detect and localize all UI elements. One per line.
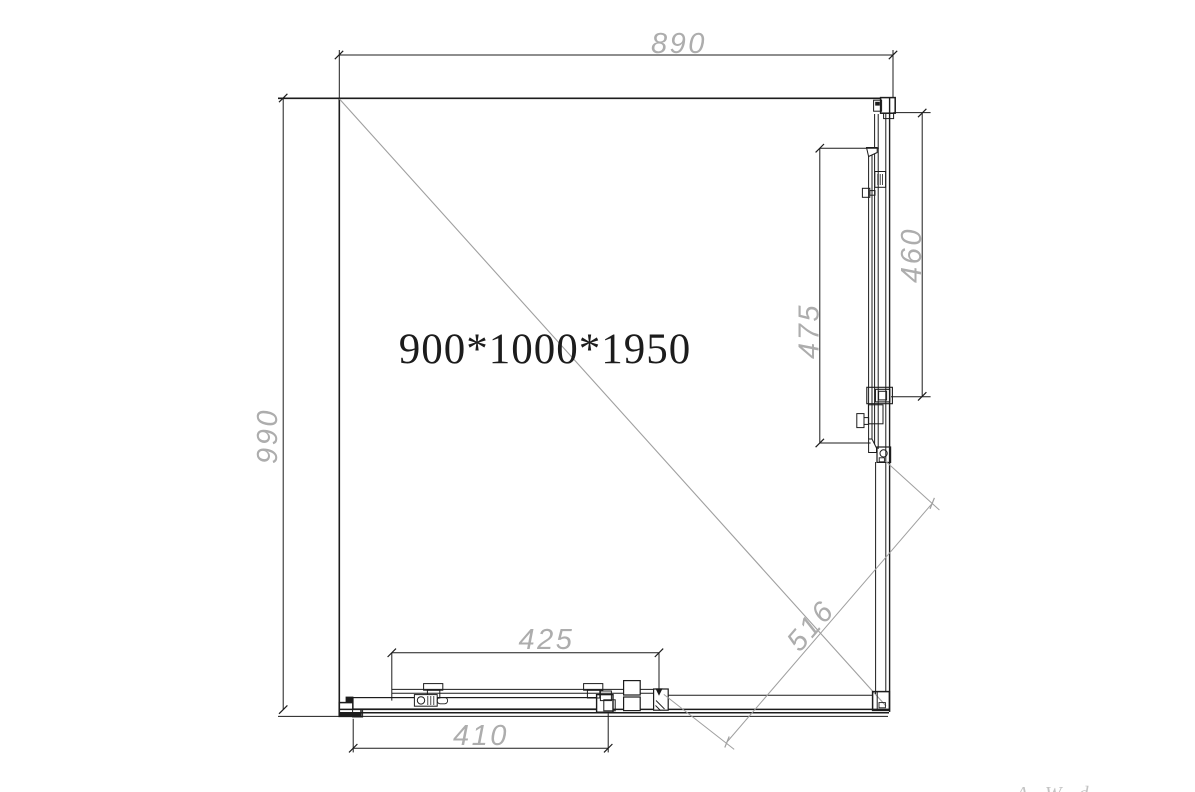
tick — [930, 498, 934, 509]
dim-text-410: 410 — [453, 720, 509, 752]
right-guide-foot — [879, 458, 884, 462]
right-panel-top-cap — [867, 148, 878, 157]
watermark: A W d — [1016, 783, 1166, 792]
right-panel-bottom-tip — [869, 439, 877, 453]
watermark-text: A W d — [1016, 783, 1095, 792]
cad-canvas: 890 990 460 475 425 — [0, 0, 1195, 792]
rail-end-cap — [654, 689, 669, 710]
size-label: 900*1000*1950 — [399, 326, 692, 373]
bottom-door-right-cap — [597, 695, 613, 713]
top-right-corner-profile — [881, 98, 896, 114]
dim-text-890: 890 — [651, 28, 707, 60]
dim-text-516: 516 — [781, 595, 842, 658]
top-right-corner-foot — [884, 113, 894, 118]
dim-text-425: 425 — [519, 624, 575, 656]
dim-right-outer: 460 — [891, 109, 931, 401]
dim-right-inner: 475 — [794, 144, 879, 447]
bottom-door-assembly — [353, 681, 668, 713]
ext-line — [886, 461, 940, 510]
door-knob-inner — [624, 697, 641, 711]
dim-top-width: 890 — [335, 28, 897, 98]
ext-line — [664, 694, 734, 749]
dim-text-475: 475 — [794, 303, 826, 359]
dim-bottom-lower: 410 — [349, 714, 612, 753]
dim-text-460: 460 — [896, 227, 928, 283]
shower-enclosure-plan: 890 990 460 475 425 — [0, 0, 1195, 792]
right-door-assembly — [857, 114, 893, 694]
right-lower-knob-bar — [857, 414, 864, 428]
door-knob-outer — [624, 681, 641, 695]
top-right-corner-notch — [875, 102, 880, 106]
right-lower-bracket — [868, 405, 883, 424]
dim-text-990: 990 — [252, 408, 284, 464]
dim-left-depth: 990 — [252, 94, 287, 714]
bottom-left-cap-base — [339, 713, 361, 716]
bottom-right-corner-insert — [879, 703, 885, 708]
